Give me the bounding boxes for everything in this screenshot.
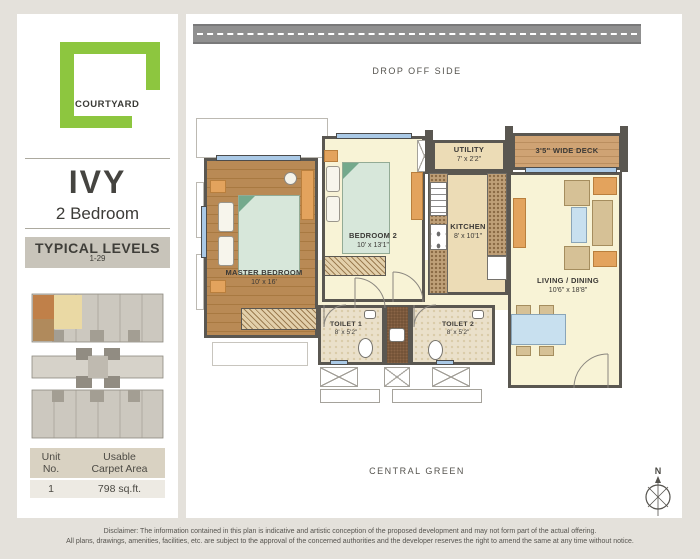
table-header-row: Unit No. Usable Carpet Area xyxy=(30,448,165,478)
disclaimer-line1: Disclaimer: The information contained in… xyxy=(0,527,700,537)
deck-label: 3'5" WIDE DECK xyxy=(536,146,599,156)
divider xyxy=(25,158,170,159)
apartment-floor-plan: MASTER BEDROOM 10' x 16' BEDROOM 2 10' x… xyxy=(196,110,648,410)
floor-plan-panel: DROP OFF SIDE CENTRAL GREEN N xyxy=(186,14,682,518)
logo-shape-right xyxy=(146,42,160,90)
unit-area-table: Unit No. Usable Carpet Area 1 798 sq.ft. xyxy=(30,448,165,498)
highlighted-unit xyxy=(33,295,54,319)
living-dining-label: LIVING / DINING 10'6" x 18'8" xyxy=(537,276,599,296)
compass-north-label: N xyxy=(638,466,678,476)
road-center-line xyxy=(197,33,637,35)
unit-name-title: IVY xyxy=(17,164,178,201)
master-bedroom-label: MASTER BEDROOM 10' x 16' xyxy=(225,268,302,288)
unit-no-value: 1 xyxy=(30,480,72,498)
courtyard-logo: COURTYARD xyxy=(60,42,160,128)
logo-shape-top xyxy=(60,42,160,54)
unit-no-header: Unit No. xyxy=(30,448,72,478)
toilet1-label: TOILET 1 8' x 5'2" xyxy=(330,320,362,338)
unit-type-subtitle: 2 Bedroom xyxy=(17,204,178,224)
sidebar-panel: COURTYARD IVY 2 Bedroom TYPICAL LEVELS 1… xyxy=(17,14,178,518)
carpet-area-header: Usable Carpet Area xyxy=(74,448,165,478)
disclaimer: Disclaimer: The information contained in… xyxy=(0,527,700,547)
logo-shape-bottom xyxy=(60,116,132,128)
brochure-page: COURTYARD IVY 2 Bedroom TYPICAL LEVELS 1… xyxy=(0,0,700,559)
table-data-row: 1 798 sq.ft. xyxy=(30,480,165,498)
utility-label: UTILITY 7' x 2'2" xyxy=(454,145,484,165)
drop-off-side-label: DROP OFF SIDE xyxy=(193,66,641,76)
compass-icon: N xyxy=(638,466,678,520)
central-green-label: CENTRAL GREEN xyxy=(193,466,641,476)
bedroom2-label: BEDROOM 2 10' x 13'1" xyxy=(349,231,397,251)
carpet-area-value: 798 sq.ft. xyxy=(74,480,165,498)
logo-wordmark: COURTYARD xyxy=(75,99,161,110)
key-plan xyxy=(30,290,165,442)
kitchen-label: KITCHEN 8' x 10'1" xyxy=(450,222,485,242)
toilet2-label: TOILET 2 8' x 5'2" xyxy=(442,320,474,338)
divider xyxy=(25,228,170,229)
drop-off-road xyxy=(193,24,641,44)
disclaimer-line2: All plans, drawings, amenities, faciliti… xyxy=(0,537,700,547)
typical-levels-badge: TYPICAL LEVELS 1-29 xyxy=(25,237,170,268)
compass-rose-icon xyxy=(638,476,678,518)
